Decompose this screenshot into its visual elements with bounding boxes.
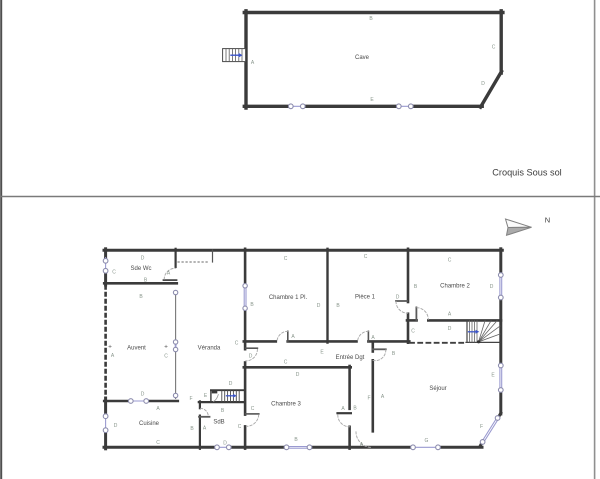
svg-text:C: C [156,440,160,446]
svg-text:Croquis Sous sol: Croquis Sous sol [492,168,561,178]
svg-text:Cuisine: Cuisine [139,421,160,427]
svg-text:SdB: SdB [213,420,224,426]
svg-text:C: C [238,424,242,430]
svg-text:Véranda: Véranda [198,346,221,352]
svg-text:Entrée Dgt: Entrée Dgt [336,355,365,361]
svg-text:C: C [411,329,415,335]
svg-text:D: D [396,295,400,301]
svg-text:D: D [141,392,145,398]
svg-text:Chambre 2: Chambre 2 [440,284,470,290]
svg-text:Séjour: Séjour [429,386,446,392]
svg-text:C: C [448,258,452,264]
svg-text:D: D [490,284,494,290]
svg-text:D: D [229,381,233,387]
svg-text:D: D [223,441,227,447]
svg-text:C: C [492,45,496,51]
svg-text:Pièce 1: Pièce 1 [355,295,376,301]
svg-text:D: D [141,256,145,262]
svg-text:D: D [114,423,118,429]
svg-text:C: C [364,254,368,260]
svg-text:F: F [189,396,192,402]
svg-text:C: C [284,360,288,366]
svg-text:C: C [235,341,239,347]
svg-text:C: C [164,354,168,360]
svg-text:Chambre 1 Pl.: Chambre 1 Pl. [269,295,308,301]
svg-text:G: G [425,438,429,444]
svg-text:Auvent: Auvent [127,346,146,352]
svg-text:Sde Wc: Sde Wc [130,266,151,272]
svg-text:D: D [481,81,485,87]
svg-text:F: F [367,396,370,402]
svg-text:+: + [108,344,112,351]
svg-text:F: F [480,424,483,430]
svg-text:Chambre 3: Chambre 3 [271,402,301,408]
svg-text:Cave: Cave [355,55,370,61]
svg-text:D: D [448,326,452,332]
svg-text:+: + [164,344,168,351]
svg-text:D: D [317,303,321,309]
svg-text:C: C [251,406,255,412]
svg-text:D: D [249,354,253,360]
svg-text:N: N [545,216,550,225]
svg-text:D: D [296,372,300,378]
svg-text:C: C [112,270,116,276]
svg-text:C: C [284,256,288,262]
